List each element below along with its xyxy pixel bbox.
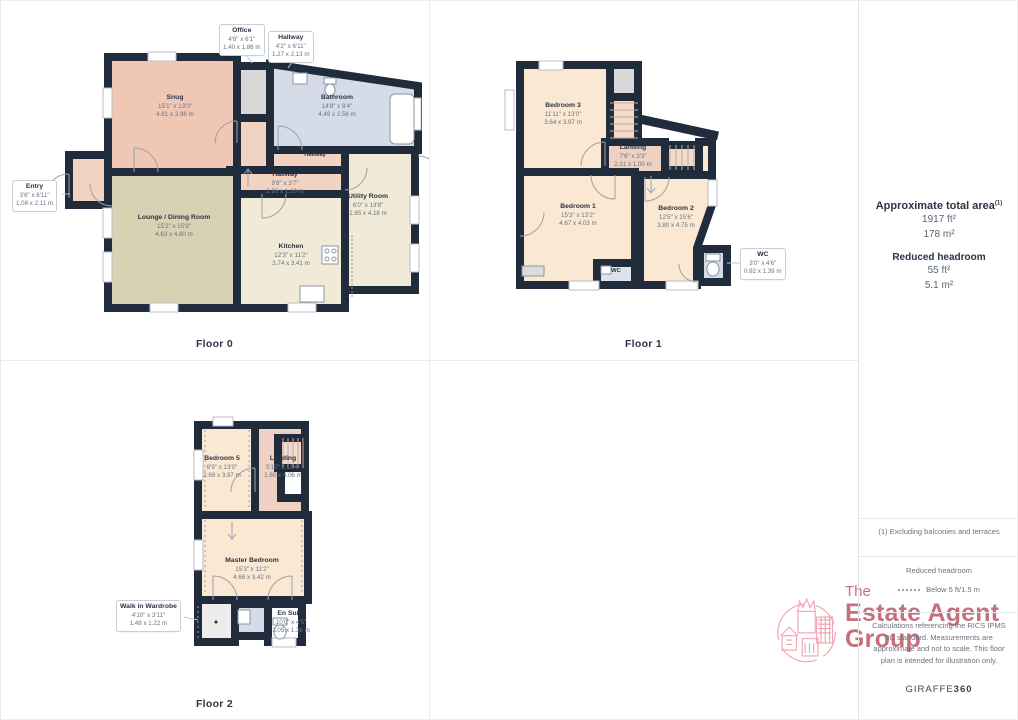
room-label-bedroom2: Bedroom 2 12'5" x 15'6" 3.80 x 4.75 m: [657, 205, 695, 231]
room-utility: [345, 150, 415, 290]
floor-2-panel: Bedroom 5 8'9" x 13'0" 2.69 x 3.97 m Lan…: [0, 360, 429, 720]
room-lounge: [108, 172, 237, 308]
floor-2-label: Floor 2: [0, 698, 429, 710]
floorplan-page: Snug 15'1" x 13'0" 4.61 x 3.96 m Bathroo…: [0, 0, 1018, 720]
toilet-cistern-icon: [706, 254, 720, 261]
total-area-title: Approximate total area(1): [859, 200, 1018, 212]
wardrobe-dot: [215, 621, 218, 624]
room-label-landing-f2: Landing 5'10" x 13'4" 1.80 x 4.06 m: [264, 455, 302, 481]
legend-value: Below 5 ft/1.5 m: [926, 585, 980, 594]
bathtub-icon: [390, 94, 414, 144]
callout-hallway: Hallway 4'2" x 6'11" 1.27 x 2.13 m: [268, 31, 314, 63]
room-label-landing-f1: Landing 7'6" x 3'3" 2.31 x 1.00 m: [614, 144, 652, 170]
total-area-ft: 1917 ft²: [859, 212, 1018, 227]
total-area-m: 178 m²: [859, 227, 1018, 242]
room-stair-nook: [610, 65, 638, 97]
room-label-bedroom5: Bedroom 5 8'9" x 13'0" 2.69 x 3.97 m: [203, 455, 241, 481]
sidebar-divider-2: [859, 556, 1018, 557]
summary-sidebar: Approximate total area(1) 1917 ft² 178 m…: [858, 0, 1018, 720]
reduced-headroom-title: Reduced headroom: [859, 252, 1018, 263]
toilet-cistern-icon: [324, 78, 336, 84]
kitchen-unit-icon: [300, 286, 324, 302]
room-label-utility: Utility Room 6'0" x 13'8" 1.85 x 4.18 m: [348, 193, 388, 219]
room-label-kitchen: Kitchen 12'3" x 11'2" 3.74 x 3.41 m: [272, 243, 310, 269]
floor-0-plan: [0, 0, 429, 360]
reduced-headroom-m: 5.1 m²: [859, 278, 1018, 293]
floor-1-label: Floor 1: [429, 338, 858, 350]
disclaimer-text: Calculations referencing the RICS IPMS 3…: [867, 620, 1011, 667]
total-area-block: Approximate total area(1) 1917 ft² 178 m…: [859, 200, 1018, 293]
room-label-snug: Snug 15'1" x 13'0" 4.61 x 3.96 m: [156, 94, 194, 120]
sink-icon: [238, 610, 250, 624]
giraffe360-brand: GIRAFFE360: [859, 684, 1018, 695]
toilet-icon: [707, 262, 719, 276]
footnote-text: (1) Excluding balconies and terraces: [859, 527, 1018, 536]
sink-icon: [293, 73, 307, 84]
room-label-lounge: Lounge / Dining Room 15'2" x 15'9" 4.63 …: [138, 214, 211, 240]
room-office: [237, 66, 270, 118]
floor-1-panel: Bedroom 3 11'11" x 13'0" 3.64 x 3.97 m L…: [429, 0, 858, 360]
legend-title: Reduced headroom: [859, 566, 1018, 575]
stairwell: [610, 97, 638, 142]
stove-icon: [322, 246, 338, 264]
sink-icon: [601, 266, 611, 274]
reduced-headroom-ft: 55 ft²: [859, 263, 1018, 278]
room-label-ensuite: En Suite 10'0" x 4'5" 3.05 x 1.36 m: [272, 610, 310, 636]
floor-1-plan: [429, 0, 858, 360]
floor-0-panel: Snug 15'1" x 13'0" 4.61 x 3.96 m Bathroo…: [0, 0, 429, 360]
floor-0-label: Floor 0: [0, 338, 429, 350]
room-label-hallway-main: Hallway 9'8" x 3'7" 2.95 x 1.10 m: [266, 171, 304, 197]
sidebar-divider-1: [859, 518, 1018, 519]
callout-walkin-wardrobe: Walk in Wardrobe 4'10" x 3'11" 1.49 x 1.…: [116, 600, 181, 632]
callout-wc: WC 3'0" x 4'6" 0.92 x 1.39 m: [740, 248, 786, 280]
floor-2-plan: [0, 360, 429, 720]
room-label-wc-inner: WC: [611, 268, 621, 274]
callout-office: Office 4'6" x 6'1" 1.40 x 1.86 m: [219, 24, 265, 56]
room-label-master-bedroom: Master Bedroom 15'3" x 11'2" 4.66 x 3.42…: [225, 557, 279, 583]
reduced-headroom-legend: Reduced headroom Below 5 ft/1.5 m: [859, 566, 1018, 594]
sidebar-divider-3: [859, 612, 1018, 613]
room-label-bathroom: Bathroom 14'8" x 8'4" 4.49 x 2.56 m: [318, 94, 356, 120]
room-label-hallway-small: Hallway: [304, 152, 326, 158]
estate-agent-buildings-icon: [772, 584, 844, 676]
dotted-line-sample: [898, 589, 920, 592]
radiator-icon: [522, 266, 544, 276]
room-label-bedroom3: Bedroom 3 11'11" x 13'0" 3.64 x 3.97 m: [544, 102, 582, 128]
room-label-bedroom1: Bedroom 1 15'3" x 13'2" 4.67 x 4.03 m: [559, 203, 597, 229]
legend-row: Below 5 ft/1.5 m: [859, 585, 1018, 594]
callout-entry: Entry 3'6" x 6'11" 1.08 x 2.11 m: [12, 180, 57, 212]
